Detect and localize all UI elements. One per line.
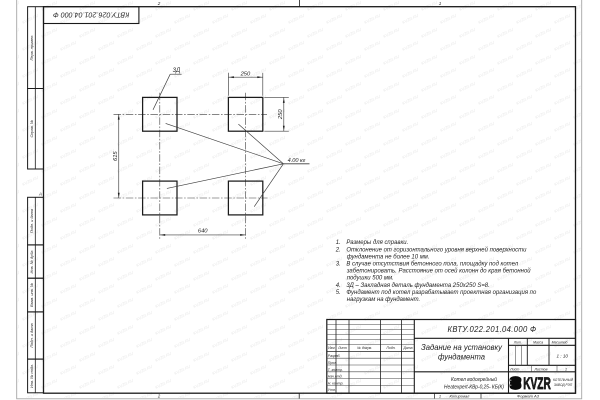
- svg-text:KVZR: KVZR: [523, 375, 551, 393]
- svg-text:Лист: Лист: [337, 346, 347, 350]
- svg-text:Инв. № дубл.: Инв. № дубл.: [29, 250, 34, 274]
- svg-text:250: 250: [278, 109, 284, 120]
- svg-text:Разраб.: Разраб.: [328, 354, 341, 358]
- svg-text:1 : 10: 1 : 10: [556, 353, 568, 358]
- svg-text:Дата: Дата: [403, 346, 413, 350]
- svg-text:КВТУ.022.201.04.000 Ф: КВТУ.022.201.04.000 Ф: [448, 325, 537, 335]
- svg-text:Масса: Масса: [533, 340, 543, 344]
- svg-text:Пров.: Пров.: [328, 361, 337, 365]
- svg-text:ЗАВОД РЭП: ЗАВОД РЭП: [554, 383, 573, 387]
- svg-text:№ докум.: № докум.: [357, 346, 372, 350]
- svg-text:Подп. и дата: Подп. и дата: [29, 208, 34, 233]
- svg-text:1: 1: [565, 367, 567, 371]
- svg-text:250: 250: [240, 72, 251, 78]
- svg-text:Формат А3: Формат А3: [517, 393, 540, 398]
- svg-text:Листов: Листов: [533, 367, 547, 371]
- svg-text:Перв. примен.: Перв. примен.: [29, 35, 34, 61]
- svg-text:Справ. №: Справ. №: [29, 119, 34, 137]
- svg-text:Лист: Лист: [509, 367, 519, 371]
- svg-text:Подп. и дата: Подп. и дата: [29, 322, 34, 347]
- svg-text:Котел водогрейный: Котел водогрейный: [451, 376, 497, 384]
- svg-text:Н. контр.: Н. контр.: [328, 381, 344, 385]
- svg-text:Утв.: Утв.: [328, 388, 336, 392]
- svg-text:3Д: 3Д: [173, 68, 181, 74]
- svg-text:Heatexpert-КВр-0,25- КБ(К): Heatexpert-КВр-0,25- КБ(К): [444, 384, 504, 390]
- svg-text:Копировал: Копировал: [450, 393, 471, 398]
- svg-text:Т. контр.: Т. контр.: [328, 368, 343, 372]
- svg-text:Изм: Изм: [328, 346, 335, 350]
- svg-text:1: 1: [439, 1, 442, 6]
- svg-text:А: А: [38, 192, 42, 197]
- svg-text:Инв. № подл.: Инв. № подл.: [29, 364, 34, 388]
- svg-text:Взам. инв. №: Взам. инв. №: [29, 282, 34, 307]
- svg-text:КОТЕЛЬНЫЙ: КОТЕЛЬНЫЙ: [553, 378, 574, 382]
- svg-text:Масштаб: Масштаб: [552, 340, 568, 344]
- svg-text:640: 640: [198, 228, 208, 234]
- svg-text:КВТУ.026.201.04.000 Ф: КВТУ.026.201.04.000 Ф: [53, 10, 130, 19]
- svg-text:1: 1: [439, 393, 441, 398]
- svg-text:фундамента: фундамента: [438, 352, 486, 361]
- svg-text:615: 615: [113, 151, 119, 161]
- svg-text:Подп.: Подп.: [386, 346, 395, 350]
- svg-text:2: 2: [157, 1, 161, 6]
- svg-text:нагрузкам на фундамент.: нагрузкам на фундамент.: [347, 296, 421, 303]
- svg-text:Нач.отд.: Нач.отд.: [328, 375, 343, 379]
- svg-text:Лит.: Лит.: [513, 340, 522, 344]
- svg-text:4.00 кг: 4.00 кг: [288, 158, 306, 164]
- svg-text:Задание на установку: Задание на установку: [421, 343, 503, 352]
